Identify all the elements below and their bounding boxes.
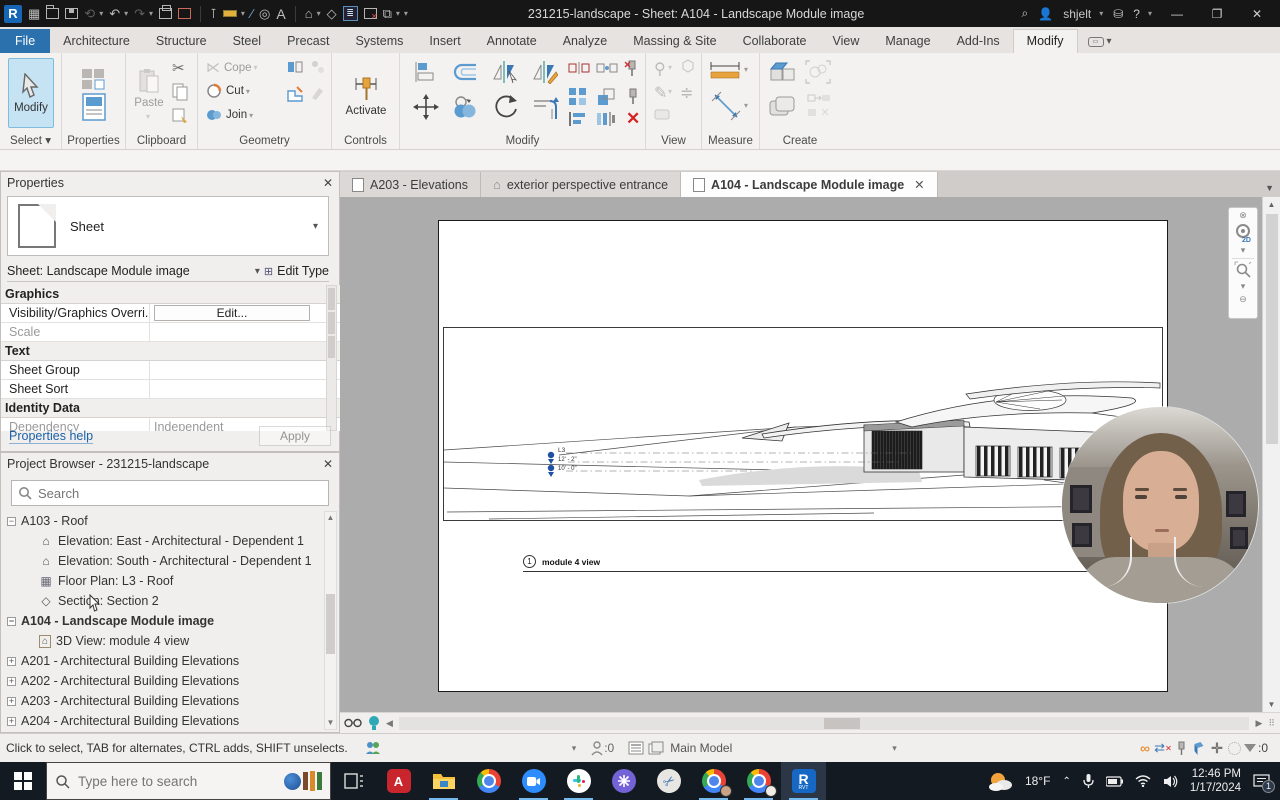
cut-profile-icon[interactable] xyxy=(654,107,672,121)
view-box-icon[interactable] xyxy=(680,59,696,73)
tag-icon[interactable]: ◎ xyxy=(259,7,270,20)
move-icon[interactable] xyxy=(412,93,440,121)
webcam-overlay xyxy=(1062,407,1258,603)
ui-board-icon[interactable]: ▦ xyxy=(28,7,40,20)
panel-label-clipboard: Clipboard xyxy=(126,135,197,147)
panel-clipboard: Paste▾ ✂ Clipboard xyxy=(126,53,198,149)
sheet-icon xyxy=(352,178,364,192)
close-doc-icon[interactable] xyxy=(178,8,191,19)
user-caret[interactable]: ▾ xyxy=(1099,9,1103,18)
redo-icon[interactable]: ↷ xyxy=(134,7,145,20)
taskbar-search-input[interactable] xyxy=(78,774,228,789)
property-row: Sheet Sort xyxy=(1,380,341,399)
tray-time: 12:46 PM xyxy=(1192,768,1241,780)
battery-icon[interactable] xyxy=(1106,776,1123,787)
speaker-icon[interactable] xyxy=(1163,775,1178,788)
panel-label-select[interactable]: Select ▾ xyxy=(0,133,61,147)
vg-edit-button[interactable]: Edit... xyxy=(154,305,310,321)
tree-item-a201[interactable]: +A201 - Architectural Building Elevation… xyxy=(3,651,321,671)
paste-label: Paste xyxy=(134,97,163,109)
browser-title-bar[interactable]: Project Browser - 231215-landscape ✕ xyxy=(1,453,339,474)
tab-architecture[interactable]: Architecture xyxy=(50,30,143,53)
file-explorer-icon xyxy=(432,771,456,791)
purple-asterisk-icon xyxy=(612,769,636,793)
worksets-icon[interactable] xyxy=(364,740,382,756)
navbar-collapse-icon[interactable]: ⊖ xyxy=(1239,294,1247,305)
apply-button[interactable]: Apply xyxy=(259,426,331,446)
horizontal-scrollbar[interactable] xyxy=(399,717,1250,730)
redo-caret: ▾ xyxy=(149,9,153,18)
reveal-hidden-lightbulb-icon[interactable] xyxy=(368,715,380,731)
copy-to-clipboard-icon[interactable] xyxy=(172,83,188,101)
tray-clock[interactable]: 12:46 PM 1/17/2024 xyxy=(1190,767,1241,796)
zoom-icon xyxy=(522,769,546,793)
taskbar-app-slack[interactable] xyxy=(556,762,601,800)
expand-icon[interactable]: + xyxy=(7,717,16,726)
cut-geometry-icon xyxy=(206,83,222,99)
taskbar-app-snip[interactable]: ✂ xyxy=(646,762,691,800)
elevation-icon: ⌂ xyxy=(39,534,53,548)
cope-icon: ⋉ xyxy=(206,59,220,76)
tree-item-a104[interactable]: −A104 - Landscape Module image xyxy=(3,611,321,631)
tab-overflow-caret[interactable]: ▼ xyxy=(1259,183,1280,197)
offset-icon[interactable] xyxy=(452,61,478,83)
taskbar-app-acrobat[interactable]: A xyxy=(376,762,421,800)
switch-windows-icon[interactable]: ⧉ xyxy=(383,7,392,20)
app-store-cart-icon[interactable]: ⛁ xyxy=(1113,7,1123,21)
design-option-caret[interactable]: ▾ xyxy=(892,743,897,754)
measure2-caret[interactable]: ▾ xyxy=(744,101,748,110)
help-caret[interactable]: ▾ xyxy=(1148,9,1152,18)
scroll-thumb[interactable] xyxy=(1266,214,1278,444)
override-graphics-icon[interactable]: ≑ xyxy=(680,83,693,103)
undo-caret: ▾ xyxy=(124,9,128,18)
scroll-down-icon[interactable]: ▼ xyxy=(1263,697,1280,712)
group-label[interactable]: Text xyxy=(1,344,30,358)
tab-annotate[interactable]: Annotate xyxy=(474,30,550,53)
system-tray: 18°F ⌃ 12:46 PM 1/17/2024 1 xyxy=(987,767,1280,796)
3d-view-icon: ⌂ xyxy=(39,635,51,648)
divider xyxy=(200,6,201,22)
panel-view: ⚲▾ ✎▾ ≑ View xyxy=(646,53,702,149)
view-number-bubble: 1 xyxy=(523,555,536,568)
sync-icon[interactable]: ⟲ xyxy=(84,7,95,20)
create-parts-icon[interactable] xyxy=(768,59,798,85)
close-tab-icon[interactable]: ✕ xyxy=(914,177,924,192)
beam-joins-icon[interactable] xyxy=(310,59,326,75)
sheet-view[interactable]: L3 12' - 2" 10' - 0" 1 module 4 view ⊗ 2… xyxy=(340,197,1280,712)
properties-toggle-button[interactable] xyxy=(68,57,120,131)
drawing-canvas-region: A203 - Elevations ⌂exterior perspective … xyxy=(340,171,1280,733)
group-label[interactable]: Graphics xyxy=(1,287,59,301)
divider xyxy=(295,6,296,22)
panel-measure: ▾ ▾ Measure xyxy=(702,53,760,149)
wall-joins-icon[interactable] xyxy=(286,59,304,75)
properties-grid: Graphics Visibility/Graphics Overri... E… xyxy=(1,285,341,431)
open-icon[interactable] xyxy=(46,8,59,19)
tree-item-section-2[interactable]: ◇Section: Section 2 xyxy=(3,591,321,611)
tree-item-3d-view[interactable]: ⌂3D View: module 4 view xyxy=(3,631,321,651)
property-row: Visibility/Graphics Overri... Edit... xyxy=(1,304,341,323)
tree-item-elev-east[interactable]: ⌂Elevation: East - Architectural - Depen… xyxy=(3,531,321,551)
activate-controls-button[interactable]: Activate xyxy=(342,58,390,130)
taskbar-app-zoom[interactable] xyxy=(511,762,556,800)
chrome-icon xyxy=(477,769,501,793)
demolish-icon[interactable] xyxy=(310,85,326,101)
properties-palette-icon xyxy=(82,93,106,121)
cut-geometry-button[interactable]: Cut▾ xyxy=(206,83,250,99)
design-options-icon[interactable] xyxy=(648,741,664,755)
notification-center-button[interactable]: 1 xyxy=(1253,774,1270,789)
panel-label-properties: Properties xyxy=(62,135,125,147)
weather-icon[interactable] xyxy=(987,771,1013,791)
mirror-pick-axis-icon[interactable] xyxy=(492,60,518,84)
active-design-option[interactable]: Main Model xyxy=(670,741,732,755)
tab-file[interactable]: File xyxy=(0,29,50,53)
tab-view[interactable]: View xyxy=(820,30,873,53)
group-label[interactable]: Identity Data xyxy=(1,401,80,415)
tray-expand-chevron[interactable]: ⌃ xyxy=(1062,776,1070,787)
tab-precast[interactable]: Precast xyxy=(274,30,342,53)
type-name: Sheet xyxy=(70,219,104,234)
windows-logo-icon xyxy=(14,772,32,790)
scroll-thumb[interactable] xyxy=(326,594,335,654)
expand-icon[interactable]: + xyxy=(7,677,16,686)
split-with-gap-icon[interactable] xyxy=(596,61,618,75)
search-icon xyxy=(18,486,32,500)
tray-date: 1/17/2024 xyxy=(1190,782,1241,794)
print-icon[interactable] xyxy=(159,8,172,19)
filter-count: :0 xyxy=(1258,741,1268,755)
microphone-icon[interactable] xyxy=(1083,774,1094,789)
slack-icon xyxy=(567,769,591,793)
ribbon: Modify Select ▾ Properties Paste▾ ✂ Clip… xyxy=(0,53,1280,150)
browser-tree: −A103 - Roof ⌂Elevation: East - Architec… xyxy=(3,511,321,731)
zoom-caret[interactable]: ▾ xyxy=(1241,281,1246,292)
temperature-label[interactable]: 18°F xyxy=(1025,774,1050,788)
expand-icon[interactable]: + xyxy=(7,697,16,706)
properties-title: Properties xyxy=(7,176,64,190)
user-avatar-icon: 👤 xyxy=(1038,7,1053,21)
worksets-caret[interactable]: ▾ xyxy=(572,743,577,754)
tree-item-a103[interactable]: −A103 - Roof xyxy=(3,511,321,531)
person-face xyxy=(1123,451,1199,551)
collapse-icon[interactable]: − xyxy=(7,617,16,626)
tree-item-floor-plan[interactable]: ▦Floor Plan: L3 - Roof xyxy=(3,571,321,591)
modify-tool-button[interactable]: Modify xyxy=(8,58,54,128)
rotate-icon[interactable] xyxy=(492,93,518,121)
family-types-icon xyxy=(81,68,107,90)
select-links-icon[interactable]: ∞ xyxy=(1136,740,1154,756)
scale-icon[interactable] xyxy=(596,87,616,107)
modify-pin-icon[interactable]: ⊺ xyxy=(210,7,217,20)
taskbar-app-revit[interactable]: RRVT xyxy=(781,762,826,800)
tab-manage[interactable]: Manage xyxy=(872,30,943,53)
panel-label-geometry: Geometry xyxy=(198,135,331,147)
tree-item-a204[interactable]: +A204 - Architectural Building Elevation… xyxy=(3,711,321,731)
instance-selector-row: Sheet: Landscape Module image ▾ ⊞ Edit T… xyxy=(7,261,329,282)
edit-type-icon: ⊞ xyxy=(264,265,273,278)
doc-tab-exterior-perspective[interactable]: ⌂exterior perspective entrance xyxy=(481,172,681,197)
taskbar-app-purple[interactable] xyxy=(601,762,646,800)
property-label: Sheet Group xyxy=(1,363,149,377)
title-bar: R ▦ ⟲▾ ↶▾ ↷▾ ⊺ ▾ ⁄ ◎ A ⌂▾ ◇ ≣ ⧉▾ ▾ 23121… xyxy=(0,0,1280,27)
search-binoculars-icon[interactable]: ⌕ xyxy=(1022,6,1029,21)
properties-help-link[interactable]: Properties help xyxy=(9,429,93,444)
pin-icon[interactable] xyxy=(626,87,640,105)
close-icon[interactable]: ✕ xyxy=(323,176,333,190)
property-label: Scale xyxy=(1,325,149,339)
measure-dim-icon[interactable] xyxy=(709,61,741,79)
sheet-drawing-3d-building: L3 12' - 2" 10' - 0" xyxy=(444,328,1162,520)
steering-wheel-2d-icon[interactable]: 2D xyxy=(1233,223,1253,243)
close-icon[interactable]: ✕ xyxy=(323,457,333,471)
save-icon[interactable] xyxy=(65,8,78,19)
taskbar-app-chrome-profile-2[interactable] xyxy=(736,762,781,800)
align-icon[interactable] xyxy=(414,61,436,83)
view-control-bar: ◀ ▶ ⠿ xyxy=(340,712,1280,733)
create-similar-icon[interactable] xyxy=(806,93,832,119)
status-hint: Click to select, TAB for alternates, CTR… xyxy=(0,741,348,755)
zoom-tool-icon[interactable] xyxy=(1234,261,1252,279)
property-value[interactable] xyxy=(149,380,341,398)
tab-insert[interactable]: Insert xyxy=(416,30,473,53)
home-caret: ▾ xyxy=(317,9,321,18)
3d-home-icon: ⌂ xyxy=(493,177,501,192)
section-icon[interactable]: ⁄ xyxy=(251,7,253,20)
picture-frame xyxy=(1230,527,1248,549)
panel-controls: Activate Controls xyxy=(332,53,400,149)
join-button[interactable]: Join▾ xyxy=(206,108,253,122)
edit-type-button[interactable]: Edit Type xyxy=(277,264,329,278)
browser-search-box[interactable] xyxy=(11,480,329,506)
tab-massing-site[interactable]: Massing & Site xyxy=(620,30,729,53)
match-type-icon[interactable] xyxy=(172,107,188,123)
signed-in-user[interactable]: shjelt xyxy=(1063,7,1091,21)
view-title[interactable]: 1 module 4 view xyxy=(523,555,600,568)
tree-item-a202[interactable]: +A202 - Architectural Building Elevation… xyxy=(3,671,321,691)
view-title-label: module 4 view xyxy=(542,557,600,567)
copy-icon[interactable] xyxy=(452,95,480,119)
tab-collaborate[interactable]: Collaborate xyxy=(730,30,820,53)
property-label: Visibility/Graphics Overri... xyxy=(1,306,149,320)
minimize-button[interactable]: — xyxy=(1162,3,1192,25)
mirror-draw-axis-icon[interactable] xyxy=(532,60,558,84)
tab-modify[interactable]: Modify xyxy=(1013,29,1078,53)
unpin-icon[interactable] xyxy=(624,59,640,77)
modify-tool-label: Modify xyxy=(14,102,48,114)
activate-label: Activate xyxy=(346,105,387,117)
taskbar-app-chrome-profile-1[interactable] xyxy=(691,762,736,800)
search-input[interactable] xyxy=(38,486,278,501)
group-row: Graphics xyxy=(1,285,341,304)
profile-avatar xyxy=(720,785,732,797)
task-view-button[interactable] xyxy=(331,762,376,800)
picture-frame xyxy=(1226,491,1246,517)
panel-label-modify: Modify xyxy=(400,135,645,147)
tab-steel[interactable]: Steel xyxy=(220,30,275,53)
doc-tab-a203[interactable]: A203 - Elevations xyxy=(340,172,481,197)
taskbar-search[interactable] xyxy=(46,762,331,800)
close-button[interactable]: ✕ xyxy=(1242,3,1272,25)
panel-label-view: View xyxy=(646,135,701,147)
panel-label-create: Create xyxy=(760,135,840,147)
create-group-icon[interactable] xyxy=(804,59,832,85)
scroll-left-icon[interactable]: ◀ xyxy=(386,718,393,729)
start-button[interactable] xyxy=(0,762,46,800)
cut-to-clipboard-icon[interactable]: ✂ xyxy=(172,59,185,77)
panel-geometry: ⋉Cope▾ Cut▾ Join▾ Geometry xyxy=(198,53,332,149)
tag-by-category-icon[interactable]: ◇ xyxy=(327,7,337,20)
scroll-down-icon[interactable]: ▼ xyxy=(325,717,336,729)
property-row: Sheet Group xyxy=(1,361,341,380)
collapse-icon[interactable]: − xyxy=(7,517,16,526)
tab-add-ins[interactable]: Add-Ins xyxy=(944,30,1013,53)
revit-logo-icon[interactable]: R xyxy=(4,5,22,23)
group-row: Text xyxy=(1,342,341,361)
thin-lines-icon[interactable]: ≣ xyxy=(343,6,358,21)
design-options-list-icon[interactable] xyxy=(628,741,644,755)
trim-extend-icon[interactable] xyxy=(532,93,560,121)
default-3d-view-icon[interactable]: ⌂ xyxy=(305,7,313,20)
restore-button[interactable]: ❐ xyxy=(1202,3,1232,25)
navbar-close-icon[interactable]: ⊗ xyxy=(1239,210,1247,221)
wifi-icon[interactable] xyxy=(1135,775,1151,787)
property-value[interactable] xyxy=(149,361,341,379)
panel-properties: Properties xyxy=(62,53,126,149)
select-by-face-icon[interactable] xyxy=(1190,741,1208,756)
property-row: Scale xyxy=(1,323,341,342)
selection-filter-icon[interactable]: :0 xyxy=(1244,741,1268,755)
browser-scrollbar[interactable]: ▲ ▼ xyxy=(324,511,337,730)
editable-count: :0 xyxy=(604,741,614,755)
picture-frame xyxy=(1070,485,1092,513)
instance-selector[interactable]: Sheet: Landscape Module image xyxy=(7,264,190,278)
elevation-icon: ⌂ xyxy=(39,554,53,568)
split-face-icon[interactable] xyxy=(286,85,304,103)
close-inactive-icon[interactable] xyxy=(364,8,377,19)
resize-grip[interactable]: ⠿ xyxy=(1268,718,1276,729)
window-title: 231215-landscape - Sheet: A104 - Landsca… xyxy=(528,7,864,21)
ribbon-tab-bar: File Architecture Structure Steel Precas… xyxy=(0,27,1280,53)
profile-avatar xyxy=(765,785,777,797)
array-icon[interactable] xyxy=(568,87,588,107)
paste-icon xyxy=(138,68,160,94)
customize-qat-caret[interactable]: ▾ xyxy=(404,9,408,18)
match-align-icon[interactable] xyxy=(596,111,616,127)
viewport-border[interactable]: L3 12' - 2" 10' - 0" xyxy=(443,327,1163,521)
delete-icon[interactable]: ✕ xyxy=(626,109,640,129)
text-icon[interactable]: A xyxy=(276,7,285,21)
ribbon-display-toggle[interactable]: ▭▾ xyxy=(1088,36,1112,53)
tree-item-elev-south[interactable]: ⌂Elevation: South - Architectural - Depe… xyxy=(3,551,321,571)
search-icon xyxy=(55,774,70,789)
task-view-icon xyxy=(344,772,364,790)
tab-structure[interactable]: Structure xyxy=(143,30,220,53)
mouse-cursor xyxy=(89,594,101,612)
tree-item-a203[interactable]: +A203 - Architectural Building Elevation… xyxy=(3,691,321,711)
picture-frame xyxy=(1072,523,1092,547)
scroll-right-icon[interactable]: ▶ xyxy=(1255,718,1262,729)
navigation-bar: ⊗ 2D ▾ ▾ ⊖ xyxy=(1228,207,1258,319)
create-assembly-icon[interactable] xyxy=(768,93,800,121)
canvas-vertical-scrollbar[interactable]: ▲ ▼ xyxy=(1262,197,1280,712)
property-value xyxy=(149,323,341,341)
quick-access-toolbar: R ▦ ⟲▾ ↶▾ ↷▾ ⊺ ▾ ⁄ ◎ A ⌂▾ ◇ ≣ ⧉▾ ▾ xyxy=(0,5,408,23)
project-browser-palette: Project Browser - 231215-landscape ✕ −A1… xyxy=(0,452,340,733)
section-icon: ◇ xyxy=(39,594,53,608)
sheet-type-icon xyxy=(18,204,56,248)
panel-label-controls: Controls xyxy=(332,135,399,147)
editable-only-icon[interactable] xyxy=(590,741,604,756)
dimension-caret: ▾ xyxy=(241,9,245,18)
sync-caret: ▾ xyxy=(99,9,103,18)
panel-create: Create xyxy=(760,53,840,149)
help-icon[interactable]: ? xyxy=(1133,7,1140,21)
drag-on-selection-icon[interactable]: ✛ xyxy=(1208,740,1226,757)
undo-icon[interactable]: ↶ xyxy=(109,7,120,20)
taskbar-app-file-explorer[interactable] xyxy=(421,762,466,800)
selection-dots-icon[interactable] xyxy=(1226,742,1244,755)
panel-label-measure: Measure xyxy=(702,135,759,147)
scroll-up-icon[interactable]: ▲ xyxy=(325,512,336,524)
status-bar: Click to select, TAB for alternates, CTR… xyxy=(0,733,1280,762)
wheel-caret[interactable]: ▾ xyxy=(1241,245,1246,256)
revit-taskbar-icon: RRVT xyxy=(792,769,816,793)
panel-modify: ✕ Modify xyxy=(400,53,646,149)
type-selector[interactable]: Sheet ▾ xyxy=(7,196,329,256)
scroll-up-icon[interactable]: ▲ xyxy=(1263,197,1280,212)
paste-button[interactable]: Paste▾ xyxy=(132,58,166,130)
properties-title-bar[interactable]: Properties ✕ xyxy=(1,172,339,193)
svg-text:2D: 2D xyxy=(1242,237,1251,243)
scissors-icon: ✂ xyxy=(652,764,685,797)
dimension-icon[interactable] xyxy=(223,10,237,17)
reveal-hidden-icon[interactable]: ⚲ xyxy=(654,59,666,79)
instance-caret[interactable]: ▾ xyxy=(255,266,260,277)
select-pinned-icon[interactable] xyxy=(1172,741,1190,756)
group-row: Identity Data xyxy=(1,399,341,418)
type-selector-caret[interactable]: ▾ xyxy=(313,221,318,232)
measure-between-icon[interactable] xyxy=(711,91,741,121)
properties-scrollbar[interactable] xyxy=(326,285,337,431)
cursor-icon xyxy=(20,73,42,99)
taskbar-app-chrome[interactable] xyxy=(466,762,511,800)
measure-caret[interactable]: ▾ xyxy=(744,65,748,74)
view-title-underline xyxy=(523,571,1161,572)
property-label: Sheet Sort xyxy=(1,382,149,396)
select-underlay-icon[interactable]: ⇄✕ xyxy=(1154,740,1172,756)
temporary-hide-glasses-icon[interactable] xyxy=(344,718,362,728)
expand-icon[interactable]: + xyxy=(7,657,16,666)
doc-tab-a104[interactable]: A104 - Landscape Module image✕ xyxy=(681,172,938,197)
scroll-thumb[interactable] xyxy=(824,718,860,729)
switch-caret: ▾ xyxy=(396,9,400,18)
linework-icon[interactable]: ✎ xyxy=(654,83,667,103)
join-icon xyxy=(206,108,222,122)
tab-systems[interactable]: Systems xyxy=(342,30,416,53)
level-label: L3 xyxy=(558,447,566,454)
align-elements-icon[interactable] xyxy=(568,111,588,127)
tab-analyze[interactable]: Analyze xyxy=(550,30,620,53)
split-element-icon[interactable] xyxy=(568,61,590,75)
sheet-icon xyxy=(693,178,705,192)
floor-plan-icon: ▦ xyxy=(39,574,53,588)
activate-pin-icon xyxy=(353,72,379,102)
cope-button[interactable]: ⋉Cope▾ xyxy=(206,59,258,76)
browser-title: Project Browser - 231215-landscape xyxy=(7,457,209,471)
acrobat-icon: A xyxy=(387,769,411,793)
